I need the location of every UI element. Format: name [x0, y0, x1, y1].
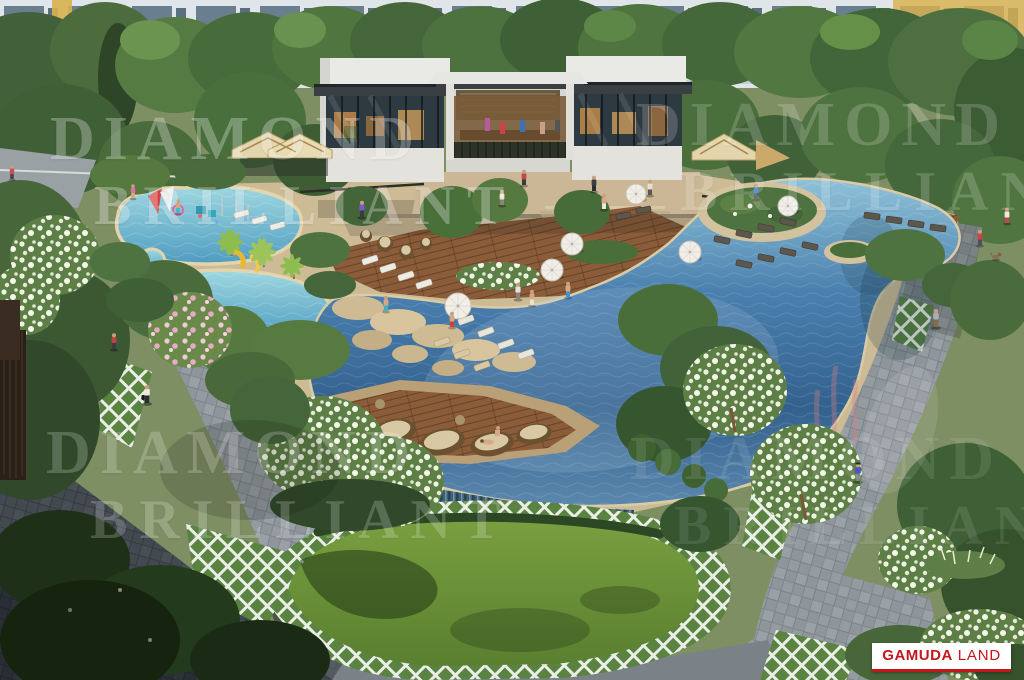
gamuda-land-logo: GAMUDA LAND: [872, 643, 1011, 672]
logo-suffix-text: LAND: [958, 647, 1001, 664]
scene-artwork: [0, 0, 1024, 680]
pool-aerial-rendering: DIAMOND BRILLIANT DIAMOND BRILLIANT DIAM…: [0, 0, 1024, 680]
logo-brand-text: GAMUDA: [882, 647, 953, 664]
